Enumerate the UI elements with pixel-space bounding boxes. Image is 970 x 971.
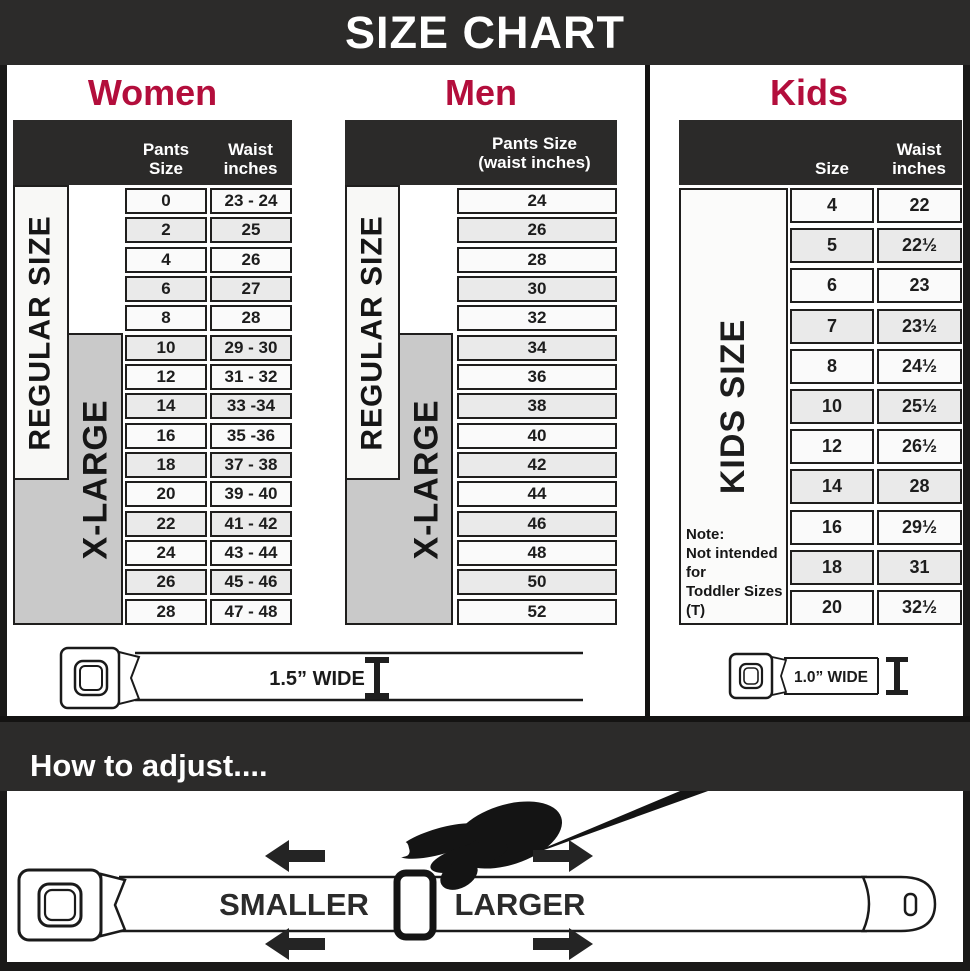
how-to-adjust-bar: How to adjust....	[0, 716, 970, 791]
waist-inches-cell: 45 - 46	[210, 569, 292, 595]
kids-size-table: 4 22 5 22½ 6 23 7 23½ 8 24½	[790, 188, 962, 625]
kids-table-row: 7 23½	[790, 309, 962, 344]
belt-buckle-icon	[61, 648, 119, 708]
men-xlarge-label: X-LARGE	[400, 333, 453, 625]
belt-tip-hole	[905, 894, 916, 915]
waist-inches-cell: 28	[210, 305, 292, 331]
pants-size-cell: 26	[457, 217, 617, 243]
women-table-row: 6 27	[125, 276, 292, 302]
larger-label: LARGER	[455, 887, 586, 922]
how-to-adjust-title: How to adjust....	[30, 748, 268, 784]
men-table-row: 28	[457, 247, 617, 273]
frame-border-left	[0, 65, 7, 971]
men-heading: Men	[345, 72, 617, 114]
buckle-latch	[772, 657, 786, 695]
pants-size-cell: 8	[125, 305, 207, 331]
women-table-row: 16 35 -36	[125, 423, 292, 449]
kids-heading: Kids	[655, 72, 963, 114]
pants-size-cell: 32	[457, 305, 617, 331]
page-title: SIZE CHART	[345, 7, 625, 59]
men-table-header: Pants Size (waist inches)	[345, 120, 617, 185]
pants-size-cell: 28	[125, 599, 207, 625]
waist-inches-cell: 39 - 40	[210, 481, 292, 507]
women-xlarge-label: X-LARGE	[69, 333, 123, 625]
women-col-pants-size: Pants Size	[125, 140, 207, 178]
men-table-row: 40	[457, 423, 617, 449]
adult-belt-width-label: 1.5” WIDE	[269, 668, 365, 690]
women-table-row: 18 37 - 38	[125, 452, 292, 478]
waist-inches-cell: 31 - 32	[210, 364, 292, 390]
women-table-row: 4 26	[125, 247, 292, 273]
kids-table-row: 14 28	[790, 469, 962, 504]
belt-buckle-icon	[19, 870, 101, 940]
size-cell: 18	[790, 550, 874, 585]
women-table-header: Pants Size Waist inches	[13, 120, 292, 185]
kids-table-header: Size Waist inches	[679, 120, 962, 185]
men-col-pants-size: Pants Size (waist inches)	[452, 134, 617, 172]
pants-size-cell: 44	[457, 481, 617, 507]
women-col-waist: Waist inches	[209, 140, 292, 178]
kids-note: Note: Not intended for Toddler Sizes (T)	[686, 525, 786, 620]
pants-size-cell: 6	[125, 276, 207, 302]
women-table-row: 20 39 - 40	[125, 481, 292, 507]
waist-inches-cell: 26	[210, 247, 292, 273]
waist-inches-cell: 22	[877, 188, 962, 223]
waist-inches-cell: 25½	[877, 389, 962, 424]
smaller-label: SMALLER	[219, 887, 369, 922]
adjustment-illustration: SMALLER LARGER	[7, 791, 963, 962]
pants-size-cell: 30	[457, 276, 617, 302]
kids-size-zone: KIDS SIZE Note: Not intended for Toddler…	[679, 188, 788, 625]
pants-size-cell: 10	[125, 335, 207, 361]
pants-size-cell: 14	[125, 393, 207, 419]
waist-inches-cell: 43 - 44	[210, 540, 292, 566]
men-table-row: 38	[457, 393, 617, 419]
kids-table-row: 5 22½	[790, 228, 962, 263]
frame-border-right	[963, 65, 970, 971]
women-table-row: 26 45 - 46	[125, 569, 292, 595]
pants-size-cell: 52	[457, 599, 617, 625]
kids-belt-illustration: 1.0” WIDE	[728, 652, 918, 700]
pants-size-cell: 24	[125, 540, 207, 566]
pants-size-cell: 18	[125, 452, 207, 478]
waist-inches-cell: 47 - 48	[210, 599, 292, 625]
kids-table-row: 6 23	[790, 268, 962, 303]
kids-table-row: 18 31	[790, 550, 962, 585]
kids-table-row: 4 22	[790, 188, 962, 223]
pants-size-cell: 22	[125, 511, 207, 537]
pants-size-cell: 34	[457, 335, 617, 361]
size-chart-image: SIZE CHART Women Men Kids Pants Size Wai…	[0, 0, 970, 971]
men-table-row: 26	[457, 217, 617, 243]
women-table-row: 22 41 - 42	[125, 511, 292, 537]
women-table-row: 24 43 - 44	[125, 540, 292, 566]
frame-border-bottom	[0, 962, 970, 971]
kids-col-waist: Waist inches	[876, 140, 962, 178]
pants-size-cell: 20	[125, 481, 207, 507]
waist-inches-cell: 37 - 38	[210, 452, 292, 478]
title-bar: SIZE CHART	[0, 0, 970, 65]
women-table-row: 2 25	[125, 217, 292, 243]
size-cell: 7	[790, 309, 874, 344]
pants-size-cell: 40	[457, 423, 617, 449]
pants-size-cell: 38	[457, 393, 617, 419]
kids-col-size: Size	[790, 159, 874, 178]
belt-buckle-icon	[730, 654, 772, 698]
pants-size-cell: 2	[125, 217, 207, 243]
kids-section-divider	[645, 65, 650, 716]
size-cell: 20	[790, 590, 874, 625]
pants-size-cell: 48	[457, 540, 617, 566]
kids-table-row: 20 32½	[790, 590, 962, 625]
pants-size-cell: 28	[457, 247, 617, 273]
pants-size-cell: 24	[457, 188, 617, 214]
pants-size-cell: 36	[457, 364, 617, 390]
size-cell: 16	[790, 510, 874, 545]
belt-tip	[863, 877, 935, 931]
belt-slider-adjuster	[397, 873, 433, 937]
men-table-row: 50	[457, 569, 617, 595]
men-table-row: 48	[457, 540, 617, 566]
size-cell: 12	[790, 429, 874, 464]
waist-inches-cell: 22½	[877, 228, 962, 263]
waist-inches-cell: 25	[210, 217, 292, 243]
size-cell: 8	[790, 349, 874, 384]
men-table-row: 42	[457, 452, 617, 478]
waist-inches-cell: 31	[877, 550, 962, 585]
size-cell: 14	[790, 469, 874, 504]
waist-inches-cell: 26½	[877, 429, 962, 464]
pants-size-cell: 0	[125, 188, 207, 214]
waist-inches-cell: 29½	[877, 510, 962, 545]
waist-inches-cell: 24½	[877, 349, 962, 384]
kids-table-row: 16 29½	[790, 510, 962, 545]
women-table-row: 0 23 - 24	[125, 188, 292, 214]
waist-inches-cell: 35 -36	[210, 423, 292, 449]
pants-size-cell: 42	[457, 452, 617, 478]
kids-table-row: 8 24½	[790, 349, 962, 384]
men-table-row: 34	[457, 335, 617, 361]
width-measure-icon	[886, 657, 908, 695]
men-table-row: 24	[457, 188, 617, 214]
pants-size-cell: 46	[457, 511, 617, 537]
men-table-row: 44	[457, 481, 617, 507]
men-size-table: 24 26 28 30 32 34 36	[457, 188, 617, 625]
adult-belt-illustration: 1.5” WIDE	[55, 645, 595, 711]
women-table-row: 28 47 - 48	[125, 599, 292, 625]
size-cell: 5	[790, 228, 874, 263]
pants-size-cell: 26	[125, 569, 207, 595]
pants-size-cell: 4	[125, 247, 207, 273]
waist-inches-cell: 29 - 30	[210, 335, 292, 361]
men-regular-zone: REGULAR SIZE	[345, 185, 400, 480]
pants-size-cell: 50	[457, 569, 617, 595]
waist-inches-cell: 32½	[877, 590, 962, 625]
size-cell: 6	[790, 268, 874, 303]
women-size-table: 0 23 - 24 2 25 4 26 6 27 8 28	[125, 188, 292, 625]
waist-inches-cell: 23	[877, 268, 962, 303]
women-table-row: 12 31 - 32	[125, 364, 292, 390]
kids-table-row: 12 26½	[790, 429, 962, 464]
women-table-row: 8 28	[125, 305, 292, 331]
pants-size-cell: 16	[125, 423, 207, 449]
waist-inches-cell: 27	[210, 276, 292, 302]
women-regular-zone: REGULAR SIZE	[13, 185, 69, 480]
kids-table-row: 10 25½	[790, 389, 962, 424]
size-cell: 10	[790, 389, 874, 424]
men-table-row: 46	[457, 511, 617, 537]
waist-inches-cell: 28	[877, 469, 962, 504]
women-table-row: 10 29 - 30	[125, 335, 292, 361]
men-table-row: 30	[457, 276, 617, 302]
size-cell: 4	[790, 188, 874, 223]
men-table-row: 52	[457, 599, 617, 625]
waist-inches-cell: 41 - 42	[210, 511, 292, 537]
pants-size-cell: 12	[125, 364, 207, 390]
men-table-row: 36	[457, 364, 617, 390]
women-table-row: 14 33 -34	[125, 393, 292, 419]
waist-inches-cell: 23½	[877, 309, 962, 344]
women-heading: Women	[13, 72, 292, 114]
waist-inches-cell: 23 - 24	[210, 188, 292, 214]
men-table-row: 32	[457, 305, 617, 331]
waist-inches-cell: 33 -34	[210, 393, 292, 419]
kids-belt-width-label: 1.0” WIDE	[794, 669, 868, 686]
